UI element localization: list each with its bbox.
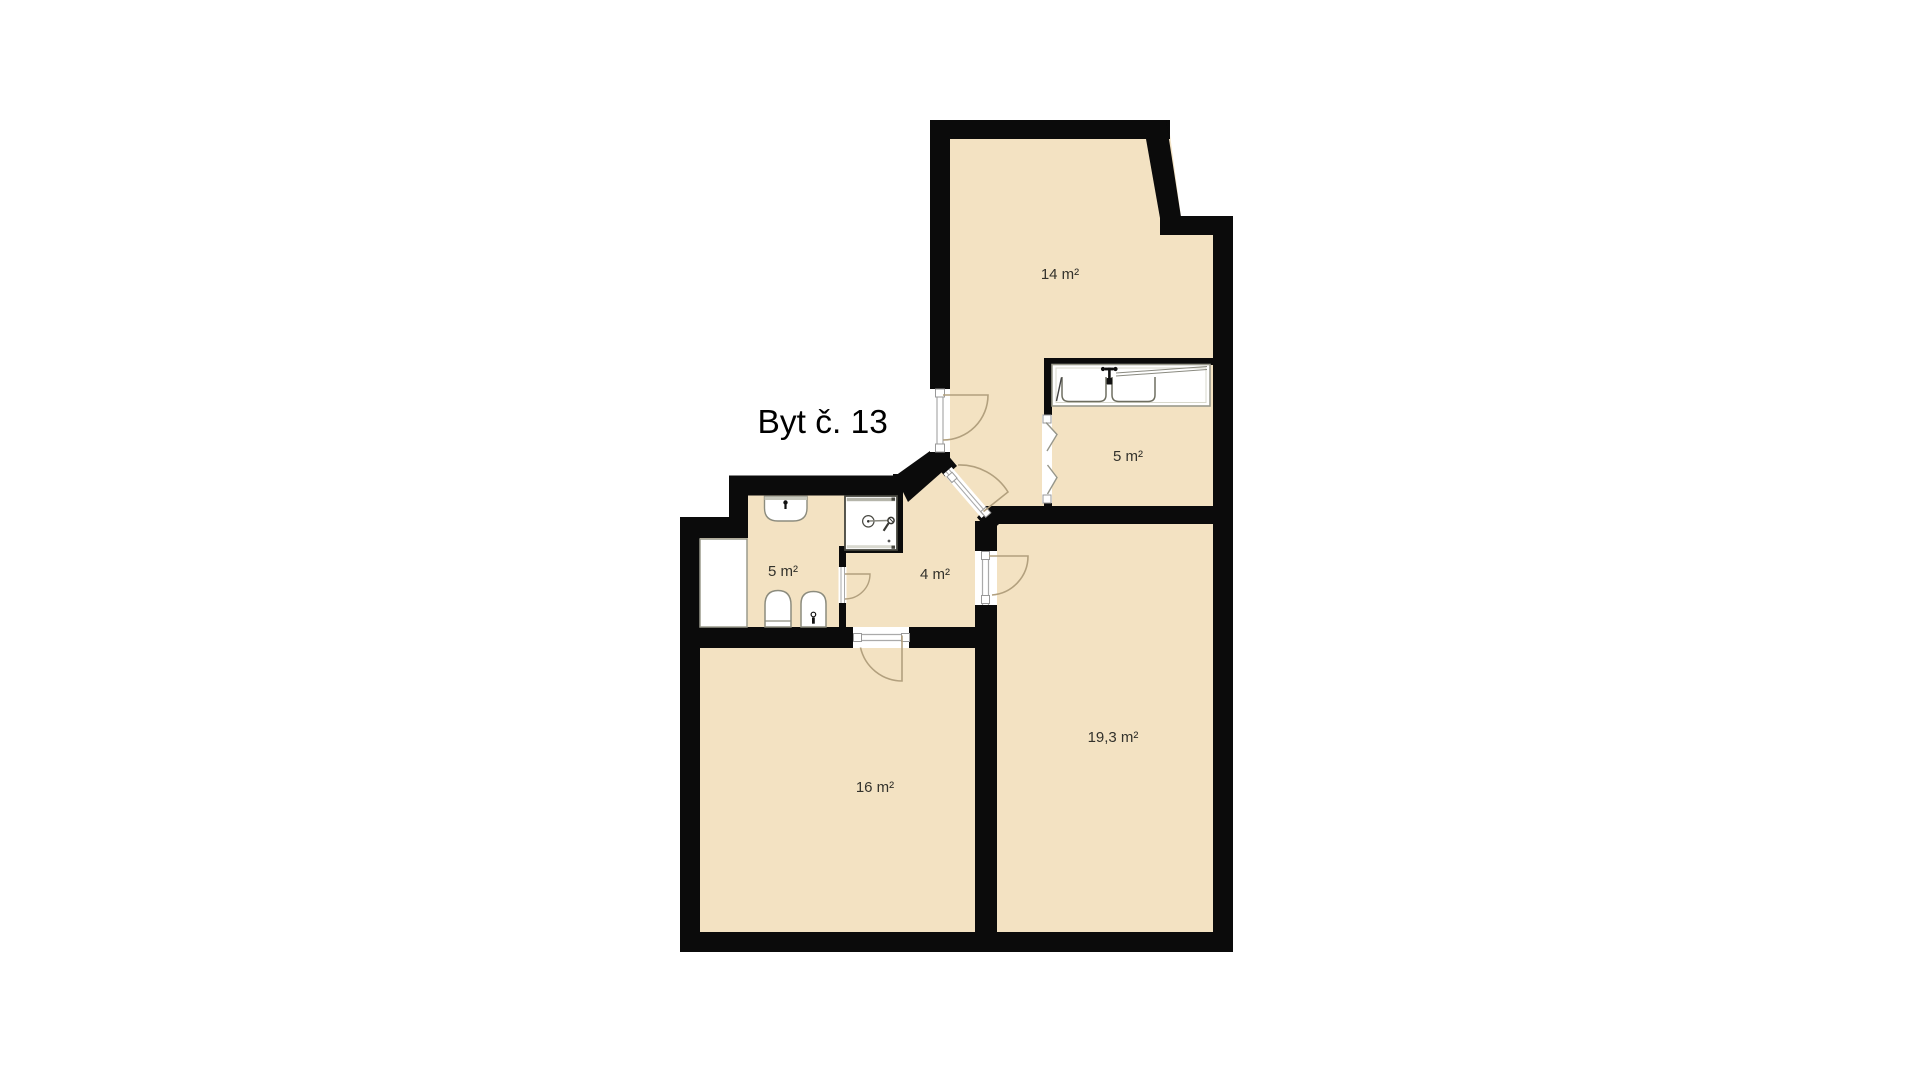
svg-text:14 m²: 14 m² [1041, 266, 1079, 283]
svg-text:16 m²: 16 m² [856, 779, 894, 796]
svg-text:19,3 m²: 19,3 m² [1088, 729, 1139, 746]
svg-text:5 m²: 5 m² [768, 563, 798, 580]
svg-text:4 m²: 4 m² [920, 566, 950, 583]
svg-text:5 m²: 5 m² [1113, 448, 1143, 465]
svg-text:Byt č. 13: Byt č. 13 [758, 404, 888, 441]
